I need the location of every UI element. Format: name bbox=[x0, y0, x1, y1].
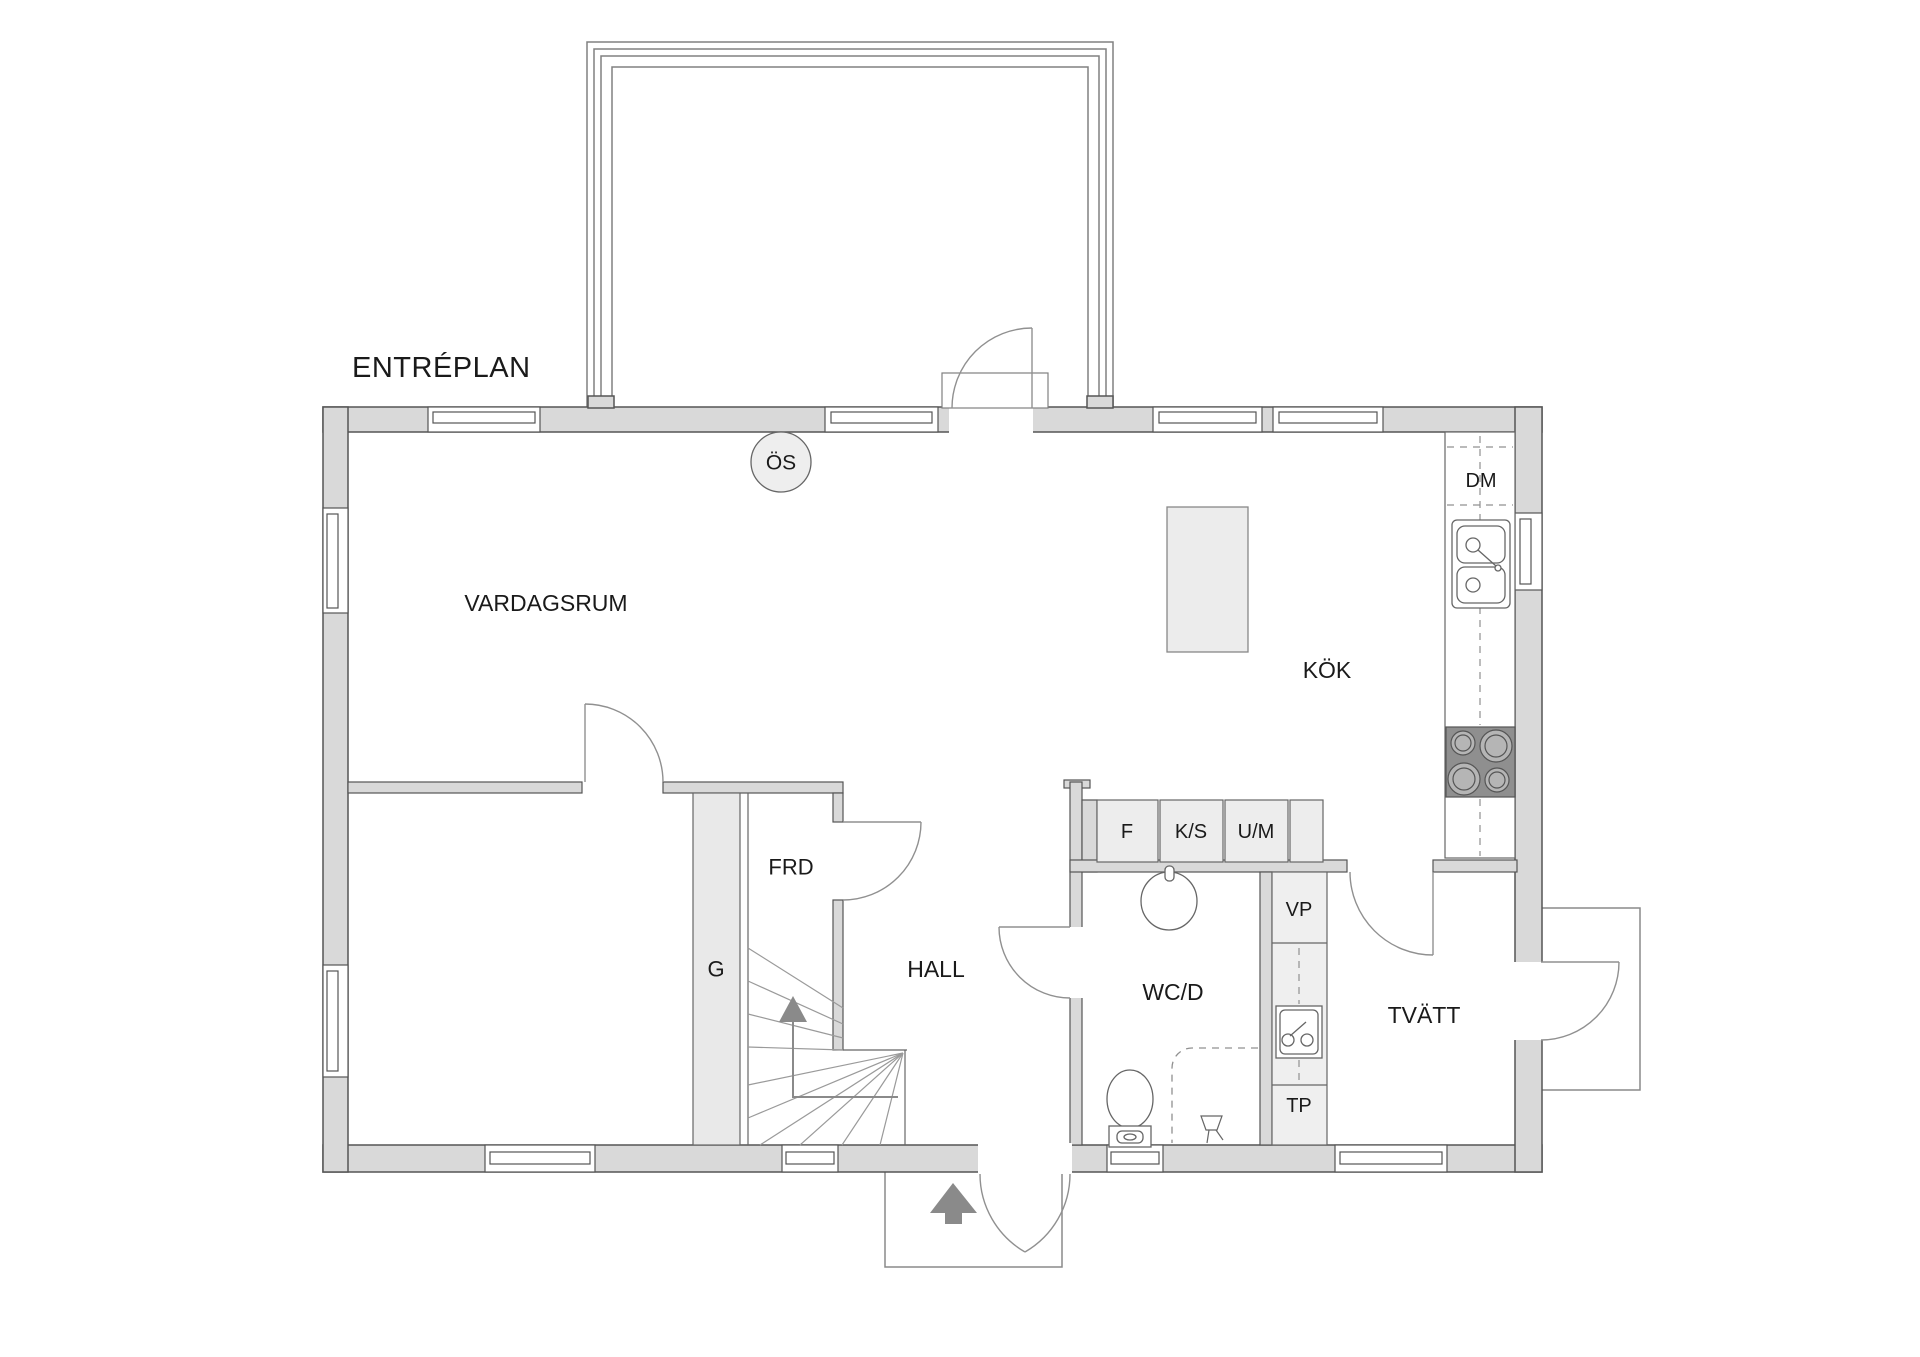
laundry-sink-icon bbox=[1276, 1006, 1322, 1058]
label-dryer: TP bbox=[1286, 1095, 1312, 1117]
washbasin-icon bbox=[1141, 866, 1197, 930]
window-stair-south bbox=[782, 1145, 838, 1172]
label-wc-shower: WC/D bbox=[1142, 979, 1203, 1005]
terrace-wall-foot-left bbox=[588, 396, 614, 408]
label-fridge-freezer: K/S bbox=[1175, 821, 1207, 843]
terrace bbox=[587, 42, 1113, 408]
label-wardrobe: G bbox=[707, 957, 724, 982]
door-wcd bbox=[999, 927, 1070, 998]
window-tvatt-south bbox=[1335, 1145, 1447, 1172]
label-dishwasher: DM bbox=[1465, 470, 1496, 492]
opening-wcd-door bbox=[1068, 927, 1084, 998]
wall-wcd-east bbox=[1260, 872, 1272, 1145]
side-platform bbox=[1542, 908, 1640, 1090]
window-livingroom-west bbox=[323, 508, 348, 613]
window-kitchen-east bbox=[1515, 513, 1542, 590]
window-kitchen-north-2 bbox=[1273, 407, 1383, 432]
label-fireplace: ÖS bbox=[766, 452, 796, 475]
window-bedroom-south bbox=[485, 1145, 595, 1172]
plan-title: ENTRÉPLAN bbox=[352, 351, 531, 384]
wall-bedroom-north-left bbox=[348, 782, 582, 793]
window-wcd-south bbox=[1107, 1145, 1163, 1172]
kitchen bbox=[1097, 432, 1515, 862]
label-laundry: TVÄTT bbox=[1388, 1002, 1461, 1028]
label-hall: HALL bbox=[907, 956, 965, 982]
terrace-wall-foot-right bbox=[1087, 396, 1113, 408]
label-kitchen: KÖK bbox=[1303, 657, 1352, 683]
terrace-outer-rail bbox=[587, 42, 1113, 408]
floor-drain-icon bbox=[1201, 1116, 1223, 1143]
label-oven-microwave: U/M bbox=[1238, 821, 1275, 843]
opening-terrace-door bbox=[949, 405, 1033, 434]
opening-entrance bbox=[978, 1143, 1072, 1174]
wall-frd-east-upper bbox=[833, 793, 843, 822]
label-storage: FRD bbox=[768, 855, 813, 880]
label-fridge: F bbox=[1121, 821, 1133, 843]
door-bedroom bbox=[585, 704, 663, 782]
floor-plan-svg: ENTRÉPLAN VARDAGSRUM KÖK HALL WC/D TVÄTT… bbox=[0, 0, 1920, 1357]
window-livingroom-north bbox=[428, 407, 540, 432]
toilet-icon bbox=[1107, 1070, 1153, 1147]
wall-tvatt-north bbox=[1433, 860, 1517, 872]
door-storage bbox=[843, 822, 921, 900]
door-tvatt-inner bbox=[1350, 872, 1433, 955]
label-heat-pump: VP bbox=[1286, 899, 1313, 921]
stairs bbox=[748, 948, 907, 1145]
kitchen-island bbox=[1167, 507, 1248, 652]
wall-bedroom-north-right bbox=[663, 782, 843, 793]
window-livingroom-terrace bbox=[825, 407, 938, 432]
opening-tvatt-exterior bbox=[1513, 962, 1544, 1040]
floor-plan-page: ENTRÉPLAN VARDAGSRUM KÖK HALL WC/D TVÄTT… bbox=[0, 0, 1920, 1357]
label-living-room: VARDAGSRUM bbox=[464, 590, 627, 616]
entrance-porch bbox=[885, 1172, 1062, 1267]
kitchen-sink-icon bbox=[1452, 520, 1510, 608]
window-bedroom-west bbox=[323, 965, 348, 1077]
stove-icon bbox=[1446, 727, 1515, 797]
bathroom-fixtures bbox=[1107, 866, 1258, 1147]
window-kitchen-north-1 bbox=[1153, 407, 1262, 432]
wall-frd-east-lower bbox=[833, 900, 843, 1050]
appliance-blank bbox=[1290, 800, 1323, 862]
